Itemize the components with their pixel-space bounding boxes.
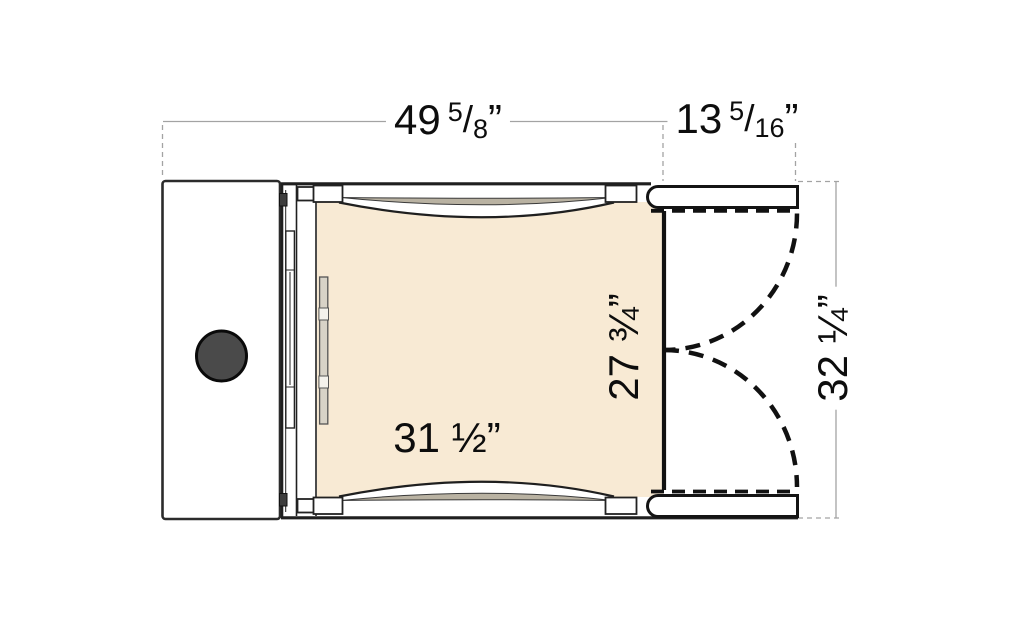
dim-text: 27 ¾” xyxy=(600,293,647,400)
top-bolster-shadow xyxy=(341,198,612,205)
dim-text: 32 ¼” xyxy=(809,294,856,401)
piano-hinge-knuckle-top xyxy=(319,308,329,320)
dim-whole: 49 xyxy=(394,96,441,143)
dim-label-seat-depth: 27 ¾” xyxy=(601,285,647,408)
block-bottom-left xyxy=(314,498,343,515)
swing-arc-bottom xyxy=(664,350,797,487)
fraction-slash: / xyxy=(744,98,754,139)
dim-numerator: 5 xyxy=(729,96,744,126)
dim-whole: 13 xyxy=(675,95,722,142)
hinge-dark-block-top xyxy=(280,194,288,207)
piano-hinge-knuckle-bottom xyxy=(319,376,329,388)
block-bottom-inner-left xyxy=(298,499,315,513)
block-top-inner-left xyxy=(298,187,315,201)
swing-arc-top xyxy=(664,214,797,351)
block-top-right xyxy=(606,186,637,203)
table-knob-icon xyxy=(197,331,247,381)
block-bottom-right xyxy=(606,498,637,515)
furniture-plan-diagram: 495/8” 135/16” 31 ½” 27 ¾” 32 ¼” xyxy=(0,0,1010,618)
block-top-left xyxy=(314,186,343,203)
inch-mark: ” xyxy=(785,95,799,142)
bottom-bolster-shadow xyxy=(341,493,612,500)
dim-label-overall-depth: 32 ¼” xyxy=(810,286,856,409)
dim-denominator: 16 xyxy=(754,113,784,143)
plan-drawing xyxy=(0,0,1010,618)
hinge-dark-block-bottom xyxy=(280,494,288,507)
dim-numerator: 5 xyxy=(448,97,463,127)
bottom-armrest xyxy=(648,496,798,517)
dim-label-extension-width: 135/16” xyxy=(667,96,806,142)
dim-label-overall-width: 495/8” xyxy=(386,97,510,143)
dim-label-seat-width: 31 ½” xyxy=(385,415,508,461)
fraction-slash: / xyxy=(463,99,473,140)
side-table xyxy=(163,181,281,519)
piano-hinge-strip xyxy=(320,277,328,424)
dim-text: 31 ½” xyxy=(393,414,500,461)
fold-out-swing-arcs xyxy=(664,214,797,488)
inch-mark: ” xyxy=(488,96,502,143)
top-armrest xyxy=(648,187,798,208)
dim-denominator: 8 xyxy=(473,114,488,144)
